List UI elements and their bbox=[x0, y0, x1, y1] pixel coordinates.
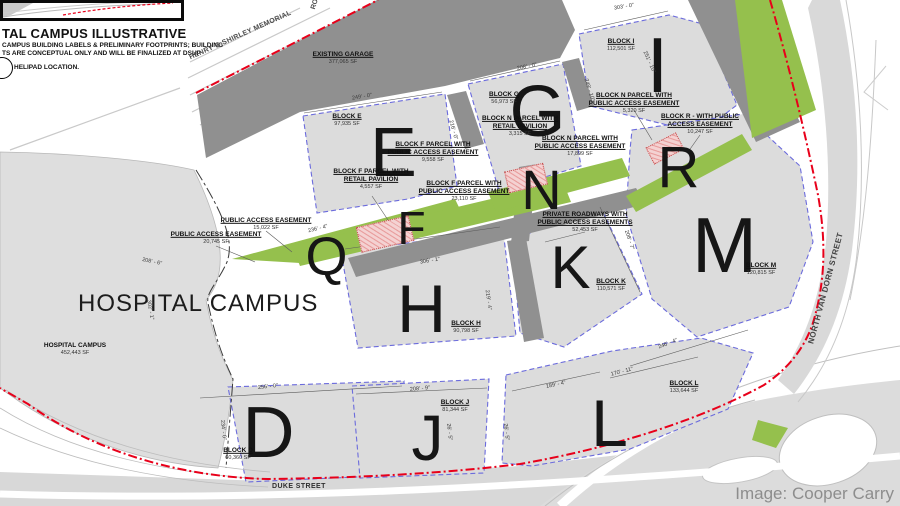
block-j bbox=[352, 379, 489, 478]
title-block: TAL CAMPUS ILLUSTRATIVE CAMPUS BUILDING … bbox=[2, 26, 223, 57]
site-plan-graphics bbox=[0, 0, 900, 506]
street-label-duke: DUKE STREET bbox=[272, 483, 326, 490]
chevron-mark bbox=[864, 66, 888, 110]
plan-title: TAL CAMPUS ILLUSTRATIVE bbox=[2, 26, 223, 41]
block-e bbox=[303, 94, 457, 213]
hospital-campus-title: HOSPITAL CAMPUS bbox=[78, 290, 318, 318]
helipad-label: HELIPAD LOCATION. bbox=[14, 64, 79, 71]
inset-graphics bbox=[3, 3, 181, 18]
image-credit: Image: Cooper Carry bbox=[735, 484, 894, 504]
location-inset-box bbox=[0, 0, 184, 21]
site-plan: EFGNIRMQKHDJLEXISTING GARAGE377,065 SFBL… bbox=[0, 0, 900, 506]
plan-note-1: CAMPUS BUILDING LABELS & PRELIMINARY FOO… bbox=[2, 42, 223, 49]
